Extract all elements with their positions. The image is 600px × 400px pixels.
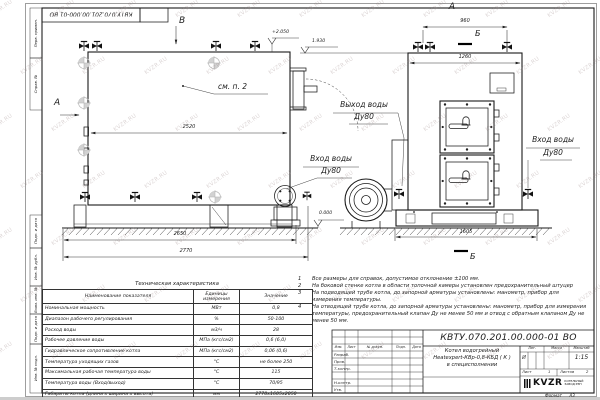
title-block-grid — [0, 0, 600, 400]
title-block-lines — [332, 330, 594, 393]
drawing-sheet: { "page": { "watermark": "KVZR.RU" }, "f… — [0, 0, 600, 400]
